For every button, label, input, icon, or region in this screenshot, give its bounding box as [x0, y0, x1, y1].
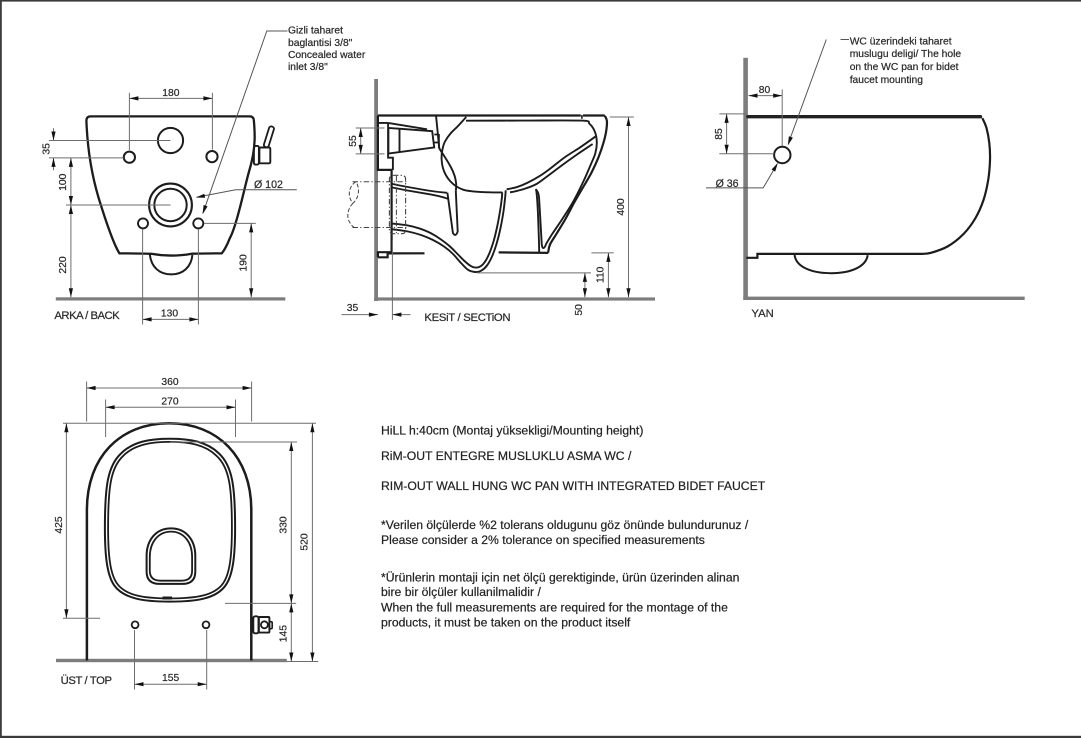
- svg-text:on the WC pan for bidet: on the WC pan for bidet: [850, 62, 959, 73]
- svg-text:baglantisi 3/8": baglantisi 3/8": [288, 38, 353, 49]
- svg-text:100: 100: [58, 173, 69, 190]
- svg-text:WC üzerindeki taharet: WC üzerindeki taharet: [850, 36, 952, 47]
- svg-text:products, it must be taken on: products, it must be taken on the produc…: [381, 615, 631, 629]
- svg-text:220: 220: [58, 256, 69, 273]
- svg-text:inlet 3/8": inlet 3/8": [288, 62, 328, 73]
- svg-text:faucet mounting: faucet mounting: [850, 75, 924, 86]
- svg-text:ARKA / BACK: ARKA / BACK: [54, 310, 120, 322]
- svg-text:bire bir ölçüler kullanilmalid: bire bir ölçüler kullanilmalidir /: [381, 585, 541, 599]
- svg-text:HiLL h:40cm (Montaj yüksekligi: HiLL h:40cm (Montaj yüksekligi/Mounting …: [381, 423, 643, 437]
- svg-text:80: 80: [759, 85, 771, 96]
- svg-text:155: 155: [162, 673, 179, 684]
- svg-text:425: 425: [54, 516, 65, 533]
- svg-text:*Verilen ölçülerde %2 tolerans: *Verilen ölçülerde %2 tolerans oldugunu …: [381, 518, 749, 532]
- svg-text:270: 270: [161, 397, 178, 408]
- svg-text:ÜST / TOP: ÜST / TOP: [61, 675, 112, 687]
- svg-text:Concealed water: Concealed water: [288, 50, 366, 61]
- svg-text:55: 55: [348, 135, 359, 147]
- svg-text:180: 180: [162, 88, 179, 99]
- svg-text:85: 85: [714, 128, 725, 140]
- svg-text:RIM-OUT WALL HUNG WC PAN WITH: RIM-OUT WALL HUNG WC PAN WITH INTEGRATED…: [381, 479, 766, 493]
- svg-text:Gizli taharet: Gizli taharet: [288, 26, 343, 37]
- svg-text:RiM-OUT ENTEGRE MUSLUKLU ASMA: RiM-OUT ENTEGRE MUSLUKLU ASMA WC /: [381, 449, 632, 463]
- svg-text:When the full measurements are: When the full measurements are required …: [381, 601, 728, 615]
- svg-text:360: 360: [161, 377, 178, 388]
- svg-text:YAN: YAN: [751, 308, 773, 320]
- svg-text:145: 145: [278, 625, 289, 642]
- svg-text:KESiT / SECTiON: KESiT / SECTiON: [424, 312, 510, 324]
- svg-text:Please consider a 2% tolerance: Please consider a 2% tolerance on specif…: [381, 533, 705, 547]
- svg-text:*Ürünlerin montaji için net öl: *Ürünlerin montaji için net ölçü gerekti…: [381, 570, 739, 584]
- svg-text:130: 130: [161, 309, 178, 320]
- svg-text:muslugu deligi/ The hole: muslugu deligi/ The hole: [850, 49, 962, 60]
- svg-text:400: 400: [616, 198, 627, 215]
- svg-text:Ø 102: Ø 102: [254, 179, 283, 191]
- svg-text:35: 35: [41, 143, 52, 155]
- svg-text:50: 50: [574, 304, 585, 316]
- svg-text:190: 190: [238, 254, 249, 271]
- svg-text:520: 520: [299, 533, 310, 550]
- svg-text:110: 110: [595, 266, 606, 283]
- svg-text:35: 35: [347, 303, 359, 314]
- svg-text:330: 330: [278, 516, 289, 533]
- svg-text:Ø 36: Ø 36: [716, 178, 739, 190]
